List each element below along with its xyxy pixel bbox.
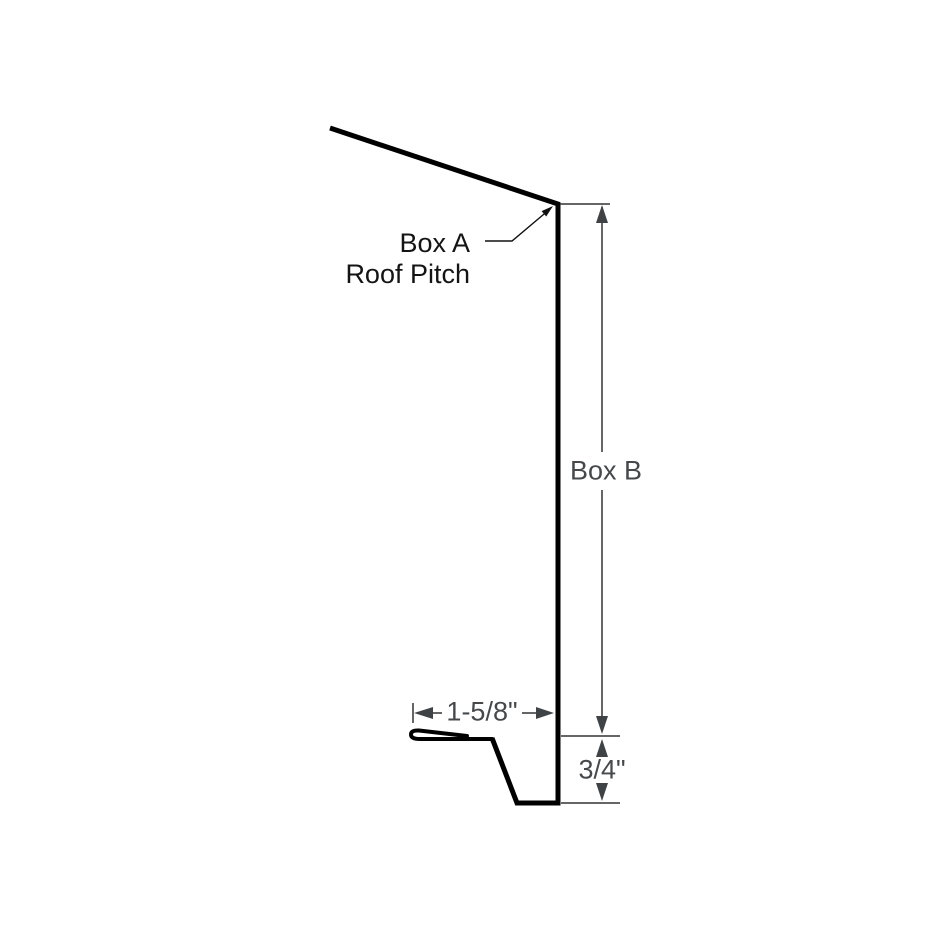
hem-loop xyxy=(411,730,492,739)
roof-pitch-label: Roof Pitch xyxy=(345,259,470,290)
kick-dimension-label: 3/4" xyxy=(578,755,625,786)
arrowhead-up-icon xyxy=(596,205,608,223)
width-dimension-label: 1-5/8" xyxy=(446,697,517,728)
width-arrowhead-left-icon xyxy=(414,707,433,719)
box-a-label: Box A xyxy=(345,228,470,259)
box-a-annotation: Box A Roof Pitch xyxy=(345,228,470,290)
diagram-canvas: Box A Roof Pitch Box B 1-5/8" 3/4" xyxy=(0,0,935,936)
trim-profile-drawing xyxy=(0,0,935,936)
width-arrowhead-right-icon xyxy=(536,707,554,719)
leader-line xyxy=(485,209,550,241)
arrowhead-down-icon xyxy=(596,716,608,734)
kick-arrowhead-down-icon xyxy=(596,783,608,801)
box-b-dimension-label: Box B xyxy=(570,456,642,487)
